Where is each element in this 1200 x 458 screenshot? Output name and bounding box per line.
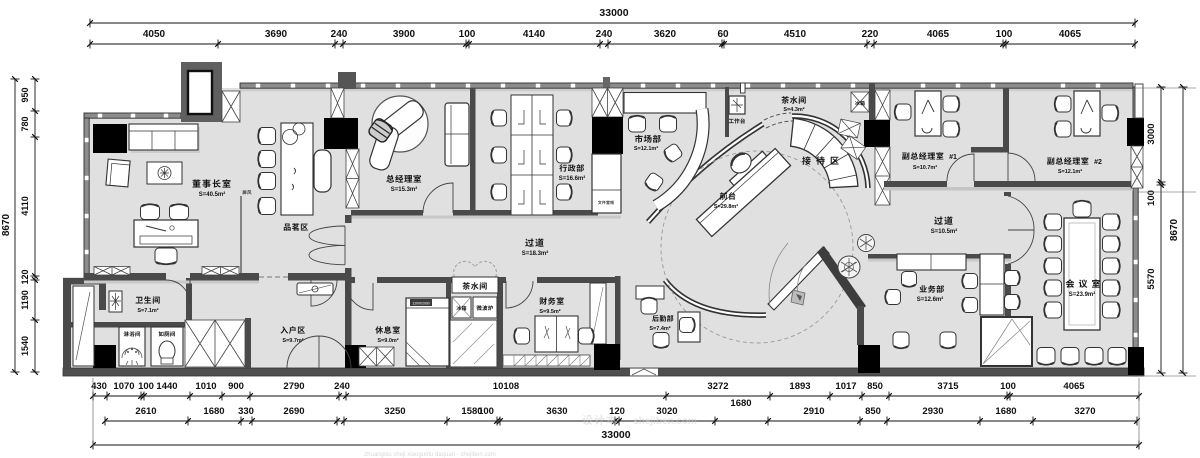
svg-text:S=29.8m²: S=29.8m² xyxy=(714,203,738,210)
svg-text:1680: 1680 xyxy=(995,406,1016,417)
svg-text:3270: 3270 xyxy=(1074,406,1095,417)
svg-text:3620: 3620 xyxy=(654,29,677,40)
svg-text:1680: 1680 xyxy=(203,406,224,417)
svg-text:4065: 4065 xyxy=(927,29,950,40)
svg-text:240: 240 xyxy=(331,29,348,40)
svg-text:S=7.4m²: S=7.4m² xyxy=(649,325,670,332)
svg-text:2690: 2690 xyxy=(283,406,304,417)
svg-text:S=18.3m²: S=18.3m² xyxy=(522,250,549,257)
svg-text:3630: 3630 xyxy=(546,406,567,417)
svg-text:100: 100 xyxy=(1146,190,1157,206)
svg-text:5570: 5570 xyxy=(1146,268,1157,289)
svg-text:2930: 2930 xyxy=(922,406,943,417)
svg-text:1540: 1540 xyxy=(20,336,30,356)
svg-text:4065: 4065 xyxy=(1063,381,1085,392)
svg-text:4050: 4050 xyxy=(143,29,166,40)
svg-text:1200X2000: 1200X2000 xyxy=(412,302,429,306)
svg-text:S=23.9m²: S=23.9m² xyxy=(1069,291,1096,298)
svg-text:780: 780 xyxy=(20,116,30,131)
svg-text:zhuangxiu sheji xiaoguotu daqu: zhuangxiu sheji xiaoguotu daquan - sheji… xyxy=(364,452,495,458)
svg-text:S=10.7m²: S=10.7m² xyxy=(913,164,937,171)
svg-text:S=9.7m²: S=9.7m² xyxy=(282,337,303,344)
svg-text:240: 240 xyxy=(596,29,613,40)
svg-text:1440: 1440 xyxy=(156,381,177,392)
svg-text:100: 100 xyxy=(478,406,494,417)
svg-text:2790: 2790 xyxy=(283,381,304,392)
svg-text:1893: 1893 xyxy=(789,381,810,392)
svg-text:S=9.5m²: S=9.5m² xyxy=(539,308,560,315)
svg-text:60: 60 xyxy=(717,29,729,40)
svg-text:240: 240 xyxy=(334,381,350,392)
svg-text:430: 430 xyxy=(91,381,107,392)
svg-text:S=15.3m²: S=15.3m² xyxy=(391,186,418,193)
svg-text:S=7.1m²: S=7.1m² xyxy=(137,307,158,314)
svg-text:950: 950 xyxy=(20,87,30,102)
svg-text:33000: 33000 xyxy=(599,7,628,19)
svg-text:S=12.1m²: S=12.1m² xyxy=(634,145,658,152)
svg-text:100: 100 xyxy=(459,29,476,40)
svg-text:S=12.6m²: S=12.6m² xyxy=(917,296,944,303)
svg-text:4110: 4110 xyxy=(20,196,30,216)
svg-text:33000: 33000 xyxy=(601,429,630,441)
svg-text:S=16.6m²: S=16.6m² xyxy=(559,175,586,182)
svg-text:100: 100 xyxy=(1000,381,1016,392)
svg-text:220: 220 xyxy=(862,29,879,40)
svg-text:10108: 10108 xyxy=(493,381,519,392)
svg-text:1680: 1680 xyxy=(730,398,751,409)
svg-text:120: 120 xyxy=(20,269,30,284)
svg-text:330: 330 xyxy=(238,406,254,417)
svg-text:1017: 1017 xyxy=(835,381,856,392)
svg-text:shejiben.com: shejiben.com xyxy=(633,416,697,427)
svg-text:4140: 4140 xyxy=(523,29,546,40)
svg-text:900: 900 xyxy=(228,381,244,392)
svg-text:1070: 1070 xyxy=(113,381,134,392)
svg-text:4065: 4065 xyxy=(1059,29,1082,40)
svg-text:S=4.3m²: S=4.3m² xyxy=(783,106,804,113)
svg-text:3690: 3690 xyxy=(265,29,288,40)
svg-text:3000: 3000 xyxy=(1146,123,1157,144)
svg-text:4510: 4510 xyxy=(784,29,807,40)
svg-text:100: 100 xyxy=(996,29,1013,40)
svg-text:3272: 3272 xyxy=(707,381,728,392)
svg-text:2610: 2610 xyxy=(135,406,156,417)
svg-text:850: 850 xyxy=(867,381,883,392)
svg-text:3250: 3250 xyxy=(384,406,405,417)
svg-text:S=40.5m²: S=40.5m² xyxy=(199,191,226,198)
svg-text:8670: 8670 xyxy=(1169,218,1180,241)
svg-text:1190: 1190 xyxy=(20,290,30,310)
svg-text:2910: 2910 xyxy=(803,406,824,417)
svg-text:#2: #2 xyxy=(1094,159,1102,166)
svg-text:#1: #1 xyxy=(949,154,957,161)
svg-text:8670: 8670 xyxy=(1,213,12,236)
svg-text:3715: 3715 xyxy=(937,381,959,392)
svg-text:S=10.5m²: S=10.5m² xyxy=(931,228,958,235)
svg-text:3900: 3900 xyxy=(393,29,416,40)
svg-text:100: 100 xyxy=(138,381,154,392)
svg-text:850: 850 xyxy=(865,406,881,417)
svg-text:S=9.0m²: S=9.0m² xyxy=(377,337,398,344)
svg-text:1010: 1010 xyxy=(195,381,216,392)
svg-text:S=12.1m²: S=12.1m² xyxy=(1058,168,1082,175)
